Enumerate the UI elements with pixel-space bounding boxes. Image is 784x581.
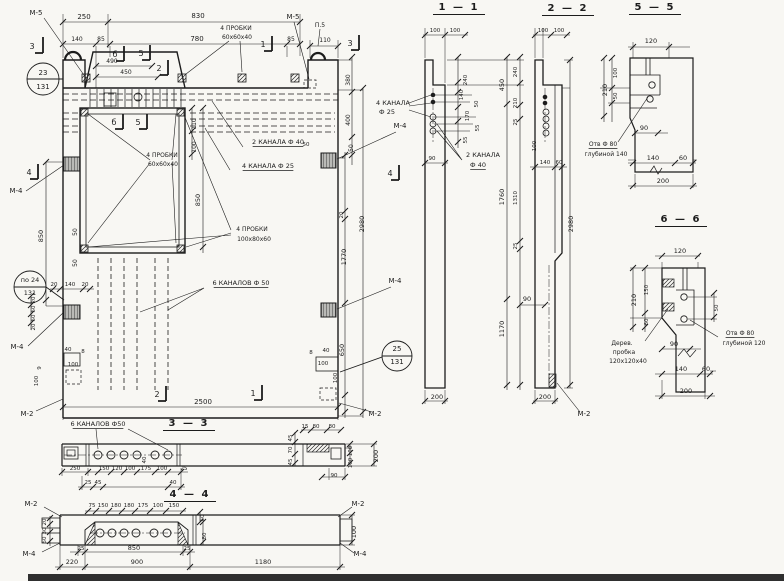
dim-label: 120 — [645, 37, 657, 45]
dim-label: 20 — [339, 211, 345, 218]
dim-label: 850 — [37, 230, 45, 242]
dim-label: глубиной 140 — [585, 151, 628, 158]
dim-label: пробка — [613, 349, 636, 356]
section-title-4-4: 4 — 4 — [164, 489, 216, 502]
cut-mark: 1 — [260, 40, 265, 49]
dim-label: 9 — [37, 366, 43, 370]
m2-anchor — [549, 374, 556, 387]
dim-label: 90 — [640, 124, 648, 132]
dim-label: 55 — [475, 124, 481, 131]
dim-label: 100 — [532, 140, 538, 151]
dim-label: 25 — [181, 466, 188, 472]
cut-mark: 3 — [29, 42, 34, 51]
dim-label: 150 — [644, 284, 650, 295]
dim-label: 210 — [630, 294, 638, 306]
dim-label: 4 КАНАЛА Ф 25 — [242, 162, 294, 170]
dim-label: 170 — [465, 110, 471, 121]
cut-mark: 3 — [347, 39, 352, 48]
dim-label: 120 — [674, 247, 686, 255]
mark-m2: М-2 — [351, 500, 364, 508]
dim-label: 60 — [200, 514, 206, 521]
dim-label: 1770 — [340, 249, 348, 266]
channel-holes — [94, 451, 172, 459]
cut-mark: 1 — [250, 389, 255, 398]
break-line — [650, 166, 662, 174]
dim-label: 210 — [513, 97, 519, 108]
dim-label: 140 — [540, 160, 551, 166]
dim-label: 100 — [333, 372, 339, 383]
dim-label: 85 — [287, 36, 295, 43]
hole — [681, 294, 687, 300]
dim-label: 60 — [556, 160, 563, 166]
cut-mark: 2 — [156, 64, 161, 73]
dim-label: 25 — [78, 546, 85, 552]
dim-label: 80 — [329, 424, 336, 430]
dim-extension-lines — [62, 444, 377, 490]
dim-label: 6 КАНАЛОВ Ф 50 — [212, 279, 269, 287]
dim-label: 50 — [303, 142, 310, 148]
panel-working-drawing: М-525083014085780854904504 ПРОБКИ60х60х4… — [0, 0, 784, 581]
dim-label: 50 — [714, 304, 720, 311]
dim-label: 50 — [72, 228, 79, 236]
dim-label: 60х60х40 — [222, 34, 252, 41]
dim-label: 450 — [498, 79, 506, 91]
dim-label: 40 — [65, 347, 72, 353]
dim-label: 2980 — [567, 216, 575, 233]
corner-detail-dashed — [66, 370, 81, 384]
dim-label: 220 — [66, 558, 78, 566]
section-4-4-view — [42, 507, 355, 570]
dim-label: 25 — [513, 118, 519, 125]
dim-label: 100 — [430, 28, 441, 34]
dim-label: 100 — [191, 141, 198, 153]
dim-label: Отв Ф 80 — [726, 330, 755, 337]
dim-label: 50 — [348, 144, 355, 152]
mark-m4: М-4 — [9, 187, 23, 195]
outline — [425, 60, 445, 388]
dim-label: 100 — [68, 362, 79, 368]
dim-ticks — [422, 32, 523, 404]
dim-label: 100 — [613, 67, 619, 78]
centerline — [545, 88, 549, 385]
dim-label: 140 — [65, 282, 76, 288]
dim-label: 100 — [450, 28, 461, 34]
dim-label: 80 — [313, 424, 320, 430]
dim-label: 250 — [77, 13, 90, 21]
dim-label: 180 — [124, 503, 135, 509]
hole — [649, 82, 655, 88]
right-end-keyway — [331, 448, 341, 459]
lifting-loop — [65, 52, 325, 60]
joint-lines — [193, 515, 196, 545]
dim-label: 40 — [170, 480, 177, 486]
dim-label: 100 — [348, 445, 354, 456]
left-end-keyway — [64, 447, 78, 459]
dim-label: 240 — [513, 66, 519, 77]
dim-label: 45 — [95, 480, 102, 486]
dim-label: 75 — [89, 503, 96, 509]
dim-label: 240 — [463, 74, 469, 85]
cut-mark: б — [113, 50, 118, 59]
dim-label: 20 — [82, 282, 89, 288]
dim-label: 780 — [190, 35, 203, 43]
dim-label: 4 ПРОБКИ — [236, 226, 267, 233]
hole — [681, 316, 687, 322]
section-title-2-2: 2 — 2 — [542, 3, 594, 16]
dim-label: 100 — [538, 28, 549, 34]
dim-label: 15 — [302, 424, 309, 430]
dim-label: 100 — [318, 361, 329, 367]
annotation-layer: М-525083014085780854904504 ПРОБКИ60х60х4… — [9, 9, 765, 566]
dim-label: Отв Ф 80 — [589, 141, 618, 148]
leader-lines — [96, 429, 168, 450]
window-opening — [80, 108, 185, 253]
mark-m4: М-4 — [393, 122, 407, 130]
dim-label: 100 — [157, 466, 168, 472]
cut-mark: 2 — [154, 390, 159, 399]
outline — [535, 60, 562, 388]
dim-label: 140 — [647, 154, 659, 162]
dim-label: 175 — [141, 466, 152, 472]
dim-label: 900 — [131, 558, 143, 566]
window-corner-plugs — [81, 109, 184, 252]
dim-label: 20 — [51, 282, 58, 288]
mark-m2: М-2 — [20, 410, 33, 418]
mark-m2: М-2 — [577, 410, 590, 418]
mark-m4: М-4 — [22, 550, 36, 558]
dim-label: 850 — [194, 194, 202, 206]
vertical-channels — [98, 258, 168, 390]
dim-label: 50 — [474, 100, 480, 107]
dim-label: 25 — [184, 546, 191, 552]
main-elevation-view — [14, 14, 412, 420]
dim-label: 45 — [288, 434, 294, 441]
dim-label: 200 — [657, 177, 669, 185]
dim-label: 150 — [99, 466, 110, 472]
dim-label: 90 — [523, 295, 531, 303]
hole — [647, 96, 653, 102]
dim-label: 100 — [350, 526, 358, 538]
dim-extension-lines — [46, 14, 363, 420]
dim-label: 2500 — [194, 398, 212, 406]
dim-label: 50 — [613, 92, 619, 99]
dim-label: 200 — [680, 387, 692, 395]
dim-label: 70 — [288, 446, 294, 453]
dim-label: 850 — [128, 544, 140, 552]
dim-label: 90 — [429, 156, 436, 162]
dim-label: 85 — [97, 36, 105, 43]
wood-plugs — [663, 279, 674, 311]
dim-ticks — [601, 44, 696, 189]
dim-label: 140 — [71, 36, 83, 43]
dim-label: 20 — [31, 296, 37, 303]
dim-label: 200 — [539, 393, 551, 401]
dim-label: 1310 — [513, 191, 519, 205]
dim-label: 250 — [70, 466, 81, 472]
dim-extension-lines — [60, 515, 355, 570]
section-5-5-view — [600, 42, 697, 189]
dim-label: 120 — [112, 466, 123, 472]
dim-label: Ф 25 — [379, 108, 395, 116]
dim-label: 6 КАНАЛОВ Ф50 — [71, 420, 126, 428]
dim-ticks — [59, 427, 377, 490]
dim-label: 40 — [323, 348, 330, 354]
dim-extension-lines — [600, 42, 697, 188]
outline — [62, 444, 345, 466]
cut-mark: б — [112, 118, 117, 127]
leader-lines — [409, 95, 462, 160]
dim-label: 180 — [111, 503, 122, 509]
cut-mark: 5 — [138, 49, 143, 58]
anchor-plates — [64, 153, 336, 319]
dim-label: глубиной 120 — [723, 340, 766, 347]
mark-m4: М-4 — [10, 343, 24, 351]
m5-recess — [304, 80, 316, 88]
dim-ticks — [28, 19, 366, 415]
dim-lines — [31, 22, 363, 418]
inner-details — [630, 58, 660, 108]
dim-label: 120х120х40 — [609, 358, 647, 365]
drawing-sheet: М-525083014085780854904504 ПРОБКИ60х60х4… — [0, 0, 784, 581]
dim-label: 4 ПРОБКИ — [220, 25, 251, 32]
dim-label: 100х80х60 — [237, 236, 271, 243]
dim-label: Ф 40 — [470, 161, 486, 169]
joint-lines — [86, 444, 303, 466]
dim-label: 100 — [554, 28, 565, 34]
dim-label: 60х60х40 — [148, 161, 178, 168]
dim-label: 100 — [34, 375, 40, 386]
dim-label: 30 — [42, 527, 48, 534]
leader-lines — [557, 383, 580, 412]
dim-label: по 24 — [21, 276, 40, 284]
dim-label: 110 — [191, 118, 198, 130]
cut-mark: 5 — [135, 118, 140, 127]
window-frame-inner — [86, 114, 179, 247]
dim-label: 110 — [319, 37, 331, 44]
cut-mark: 4 — [26, 168, 31, 177]
dim-label: 400 — [345, 114, 352, 126]
dim-label: 50 — [42, 536, 48, 543]
dim-label: 60 — [702, 365, 710, 373]
dim-label: 830 — [191, 12, 204, 20]
channel-holes — [543, 95, 549, 136]
dim-label: 650 — [338, 344, 346, 356]
section-title-6-6: 6 — 6 — [655, 214, 707, 227]
mark-m4: М-4 — [388, 277, 402, 285]
dim-label: 380 — [345, 74, 352, 86]
dim-label: 23 — [39, 69, 48, 77]
dim-label: 20 — [31, 323, 37, 330]
dim-label: 490 — [106, 58, 118, 65]
dim-label: 450 — [120, 69, 132, 76]
dim-label: 131 — [390, 358, 403, 366]
top-plugs — [82, 74, 299, 82]
mark-m4: М-4 — [353, 550, 367, 558]
dim-label: 150 — [98, 503, 109, 509]
dim-label: 90 — [670, 340, 678, 348]
section-3-3-view — [59, 427, 377, 490]
dim-label: 131 — [24, 289, 36, 297]
dim-label: 210 — [601, 84, 609, 96]
dim-label: 4 КАНАЛА — [376, 99, 410, 107]
dim-label: 2 КАНАЛА — [466, 151, 500, 159]
mark-m5: М-5 — [286, 13, 299, 21]
dim-label: 1180 — [255, 558, 272, 566]
dim-label: 50 — [31, 314, 37, 321]
dim-label: 25 — [85, 480, 92, 486]
dim-label: 50 — [31, 305, 37, 312]
dim-label: 40 — [142, 456, 148, 463]
dim-label: 100 — [348, 457, 354, 468]
dim-label: Дерев. — [611, 340, 632, 347]
dim-label: 55 — [463, 136, 469, 143]
corner-detail-dashed — [320, 388, 336, 400]
dim-label: 4 ПРОБКИ — [146, 152, 177, 159]
mark-m2: М-2 — [368, 410, 381, 418]
dim-label: 200 — [431, 393, 443, 401]
dim-label: 100 — [153, 503, 164, 509]
dim-label: 140 — [459, 89, 465, 100]
embed-box — [104, 93, 116, 106]
dim-label: П.5 — [315, 22, 325, 29]
right-end-plug — [307, 444, 329, 452]
section-title-1-1: 1 — 1 — [433, 2, 485, 15]
dim-label: 8 — [309, 350, 313, 356]
dim-label: 2 КАНАЛА Ф 40 — [252, 138, 304, 146]
sheet-border — [28, 574, 784, 581]
mark-m2: М-2 — [24, 500, 37, 508]
dim-label: 2980 — [358, 216, 366, 233]
dim-label: 175 — [138, 503, 149, 509]
dim-label: 45 — [288, 458, 294, 465]
dim-label: 25 — [513, 242, 519, 249]
dim-label: 50 — [72, 259, 79, 267]
cut-mark: 4 — [387, 169, 392, 178]
mark-m5: М-5 — [29, 9, 42, 17]
dim-label: 8 — [81, 349, 85, 355]
dim-label: 131 — [36, 83, 49, 91]
inner-details — [676, 268, 694, 325]
section-title-5-5: 5 — 5 — [629, 2, 681, 15]
dim-label: 90 — [331, 473, 338, 479]
section-title-3-3: 3 — 3 — [163, 418, 215, 431]
dim-label: 150 — [169, 503, 180, 509]
dim-label: 20 — [42, 518, 48, 525]
dim-label: 1170 — [498, 321, 506, 338]
dim-label: 25 — [393, 345, 402, 353]
dim-label: 60 — [679, 154, 687, 162]
dim-label: 60 — [644, 318, 650, 325]
dim-label: 140 — [675, 365, 687, 373]
recess-outline — [85, 522, 188, 545]
break-line — [678, 349, 696, 357]
recess-wedges — [85, 522, 188, 545]
dim-label: 80 — [202, 532, 208, 539]
dim-label: 200 — [372, 450, 380, 462]
dim-label: 1760 — [498, 189, 506, 206]
dim-label: 100 — [125, 466, 136, 472]
